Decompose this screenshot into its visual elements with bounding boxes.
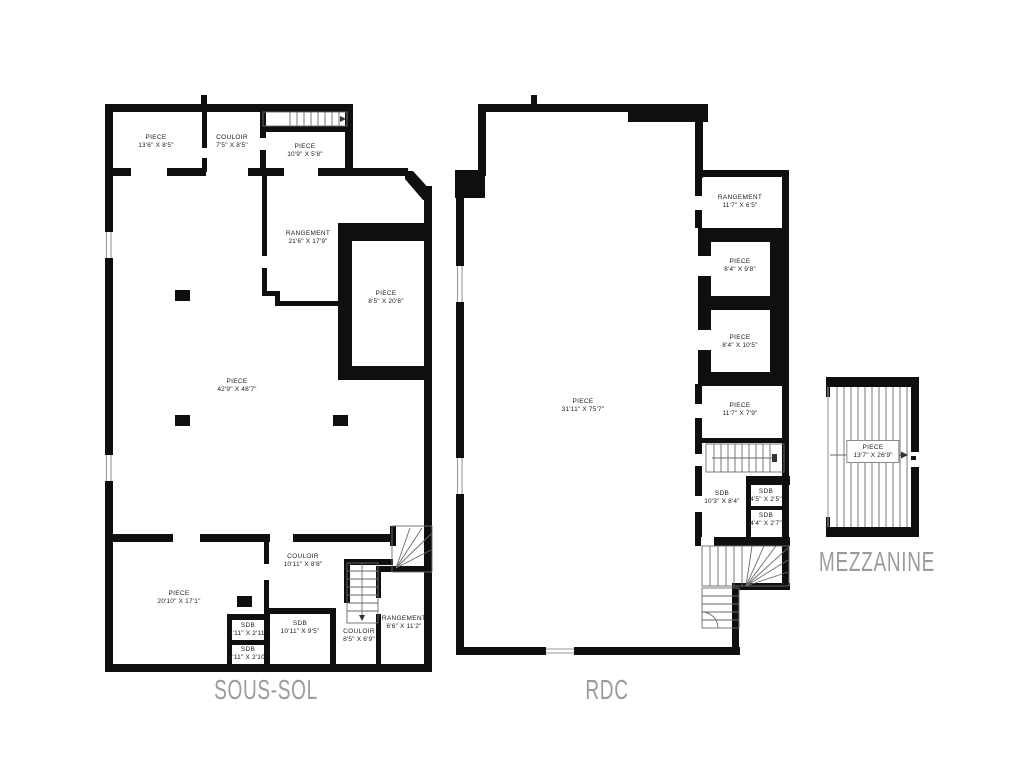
room-name: PIECE xyxy=(217,378,256,386)
stair-direction-arrow-icon xyxy=(772,454,777,462)
room-label: PIECE 20'10" X 17'1" xyxy=(157,590,200,606)
room-label: PIECE 42'9" X 48'7" xyxy=(217,378,256,394)
room-name: PIECE xyxy=(157,590,200,598)
room-dims: 4'11" X 2'10" xyxy=(229,654,268,662)
room-label: SDB 10'3" X 8'4" xyxy=(704,490,740,506)
room-label: SDB 4'11" X 2'10" xyxy=(229,646,268,662)
room-name: SDB xyxy=(750,512,782,520)
room-label: PIECE 8'4" X 10'5" xyxy=(722,334,758,350)
room-name: PIECE xyxy=(368,290,404,298)
room-name: PIECE xyxy=(722,334,758,342)
room-name: PIECE xyxy=(722,402,757,410)
room-label: SDB 10'11" X 9'5" xyxy=(281,620,320,636)
room-label: RANGEMENT 21'6" X 17'9" xyxy=(286,230,330,246)
room-name: RANGEMENT xyxy=(382,615,426,623)
room-label: SDB 4'11" X 2'11" xyxy=(229,622,267,638)
stair-direction-arrow-icon xyxy=(359,615,365,621)
floorplan-sheet: PIECE 13'6" X 8'5" COULOIR 7'5" X 8'5" P… xyxy=(0,0,1024,768)
room-name: SDB xyxy=(281,620,320,628)
room-label: RANGEMENT 11'7" X 6'5" xyxy=(718,194,762,210)
room-dims: 10'3" X 8'4" xyxy=(704,498,740,506)
rdc-walls xyxy=(455,95,790,655)
room-dims: 8'4" X 10'5" xyxy=(722,342,758,350)
rdc-stairs xyxy=(702,444,789,628)
room-name: SDB xyxy=(750,488,782,496)
room-name: PIECE xyxy=(138,134,174,142)
room-dims: 13'7" X 26'9" xyxy=(853,452,892,460)
room-label: PIECE 31'11" X 75'7" xyxy=(562,398,605,414)
room-dims: 7'5" X 8'5" xyxy=(216,142,248,150)
room-dims: 20'10" X 17'1" xyxy=(157,598,200,606)
room-dims: 4'4" X 2'7" xyxy=(750,520,782,528)
sous-sol-walls xyxy=(105,95,432,672)
room-name: PIECE xyxy=(562,398,605,406)
room-dims: 8'5" X 20'6" xyxy=(368,298,404,306)
room-name: PIECE xyxy=(724,258,756,266)
room-label: PIECE 8'5" X 20'6" xyxy=(368,290,404,306)
plan-title-sous-sol: SOUS-SOL xyxy=(214,674,318,706)
room-label: PIECE 10'9" X 5'8" xyxy=(287,143,323,159)
room-name: RANGEMENT xyxy=(286,230,330,238)
room-dims: 42'9" X 48'7" xyxy=(217,386,256,394)
room-label: SDB 4'4" X 2'7" xyxy=(750,512,782,528)
room-name: SDB xyxy=(229,622,267,630)
room-dims: 8'5" X 6'9" xyxy=(343,636,375,644)
room-name: PIECE xyxy=(287,143,323,151)
room-dims: 4'11" X 2'11" xyxy=(229,630,267,638)
room-label: COULOIR 7'5" X 8'5" xyxy=(216,134,248,150)
room-dims: 13'6" X 8'5" xyxy=(138,142,174,150)
room-label: PIECE 13'7" X 26'9" xyxy=(846,440,899,463)
room-dims: 6'6" X 11'2" xyxy=(382,623,426,631)
room-label: RANGEMENT 6'6" X 11'2" xyxy=(382,615,426,631)
room-name: COULOIR xyxy=(343,628,375,636)
plan-title-rdc: RDC xyxy=(585,674,628,706)
floorplan-drawing xyxy=(0,0,1024,768)
room-label: COULOIR 10'11" X 8'8" xyxy=(284,553,323,569)
room-dims: 10'11" X 8'8" xyxy=(284,561,323,569)
room-dims: 10'11" X 9'5" xyxy=(281,628,320,636)
room-dims: 11'7" X 6'5" xyxy=(718,202,762,210)
room-name: PIECE xyxy=(853,444,892,452)
room-label: PIECE 11'7" X 7'9" xyxy=(722,402,757,418)
room-dims: 21'6" X 17'9" xyxy=(286,238,330,246)
room-name: RANGEMENT xyxy=(718,194,762,202)
room-name: SDB xyxy=(704,490,740,498)
room-dims: 8'4" X 9'8" xyxy=(724,266,756,274)
plan-title-mezzanine: MEZZANINE xyxy=(819,546,935,578)
room-label: PIECE 8'4" X 9'8" xyxy=(724,258,756,274)
room-label: PIECE 13'6" X 8'5" xyxy=(138,134,174,150)
room-dims: 31'11" X 75'7" xyxy=(562,406,605,414)
room-dims: 10'9" X 5'8" xyxy=(287,151,323,159)
room-dims: 11'7" X 7'9" xyxy=(722,410,757,418)
room-label: SDB 4'5" X 2'5" xyxy=(750,488,782,504)
room-dims: 4'5" X 2'5" xyxy=(750,496,782,504)
room-name: COULOIR xyxy=(216,134,248,142)
room-name: COULOIR xyxy=(284,553,323,561)
room-label: COULOIR 8'5" X 6'9" xyxy=(343,628,375,644)
room-name: SDB xyxy=(229,646,268,654)
